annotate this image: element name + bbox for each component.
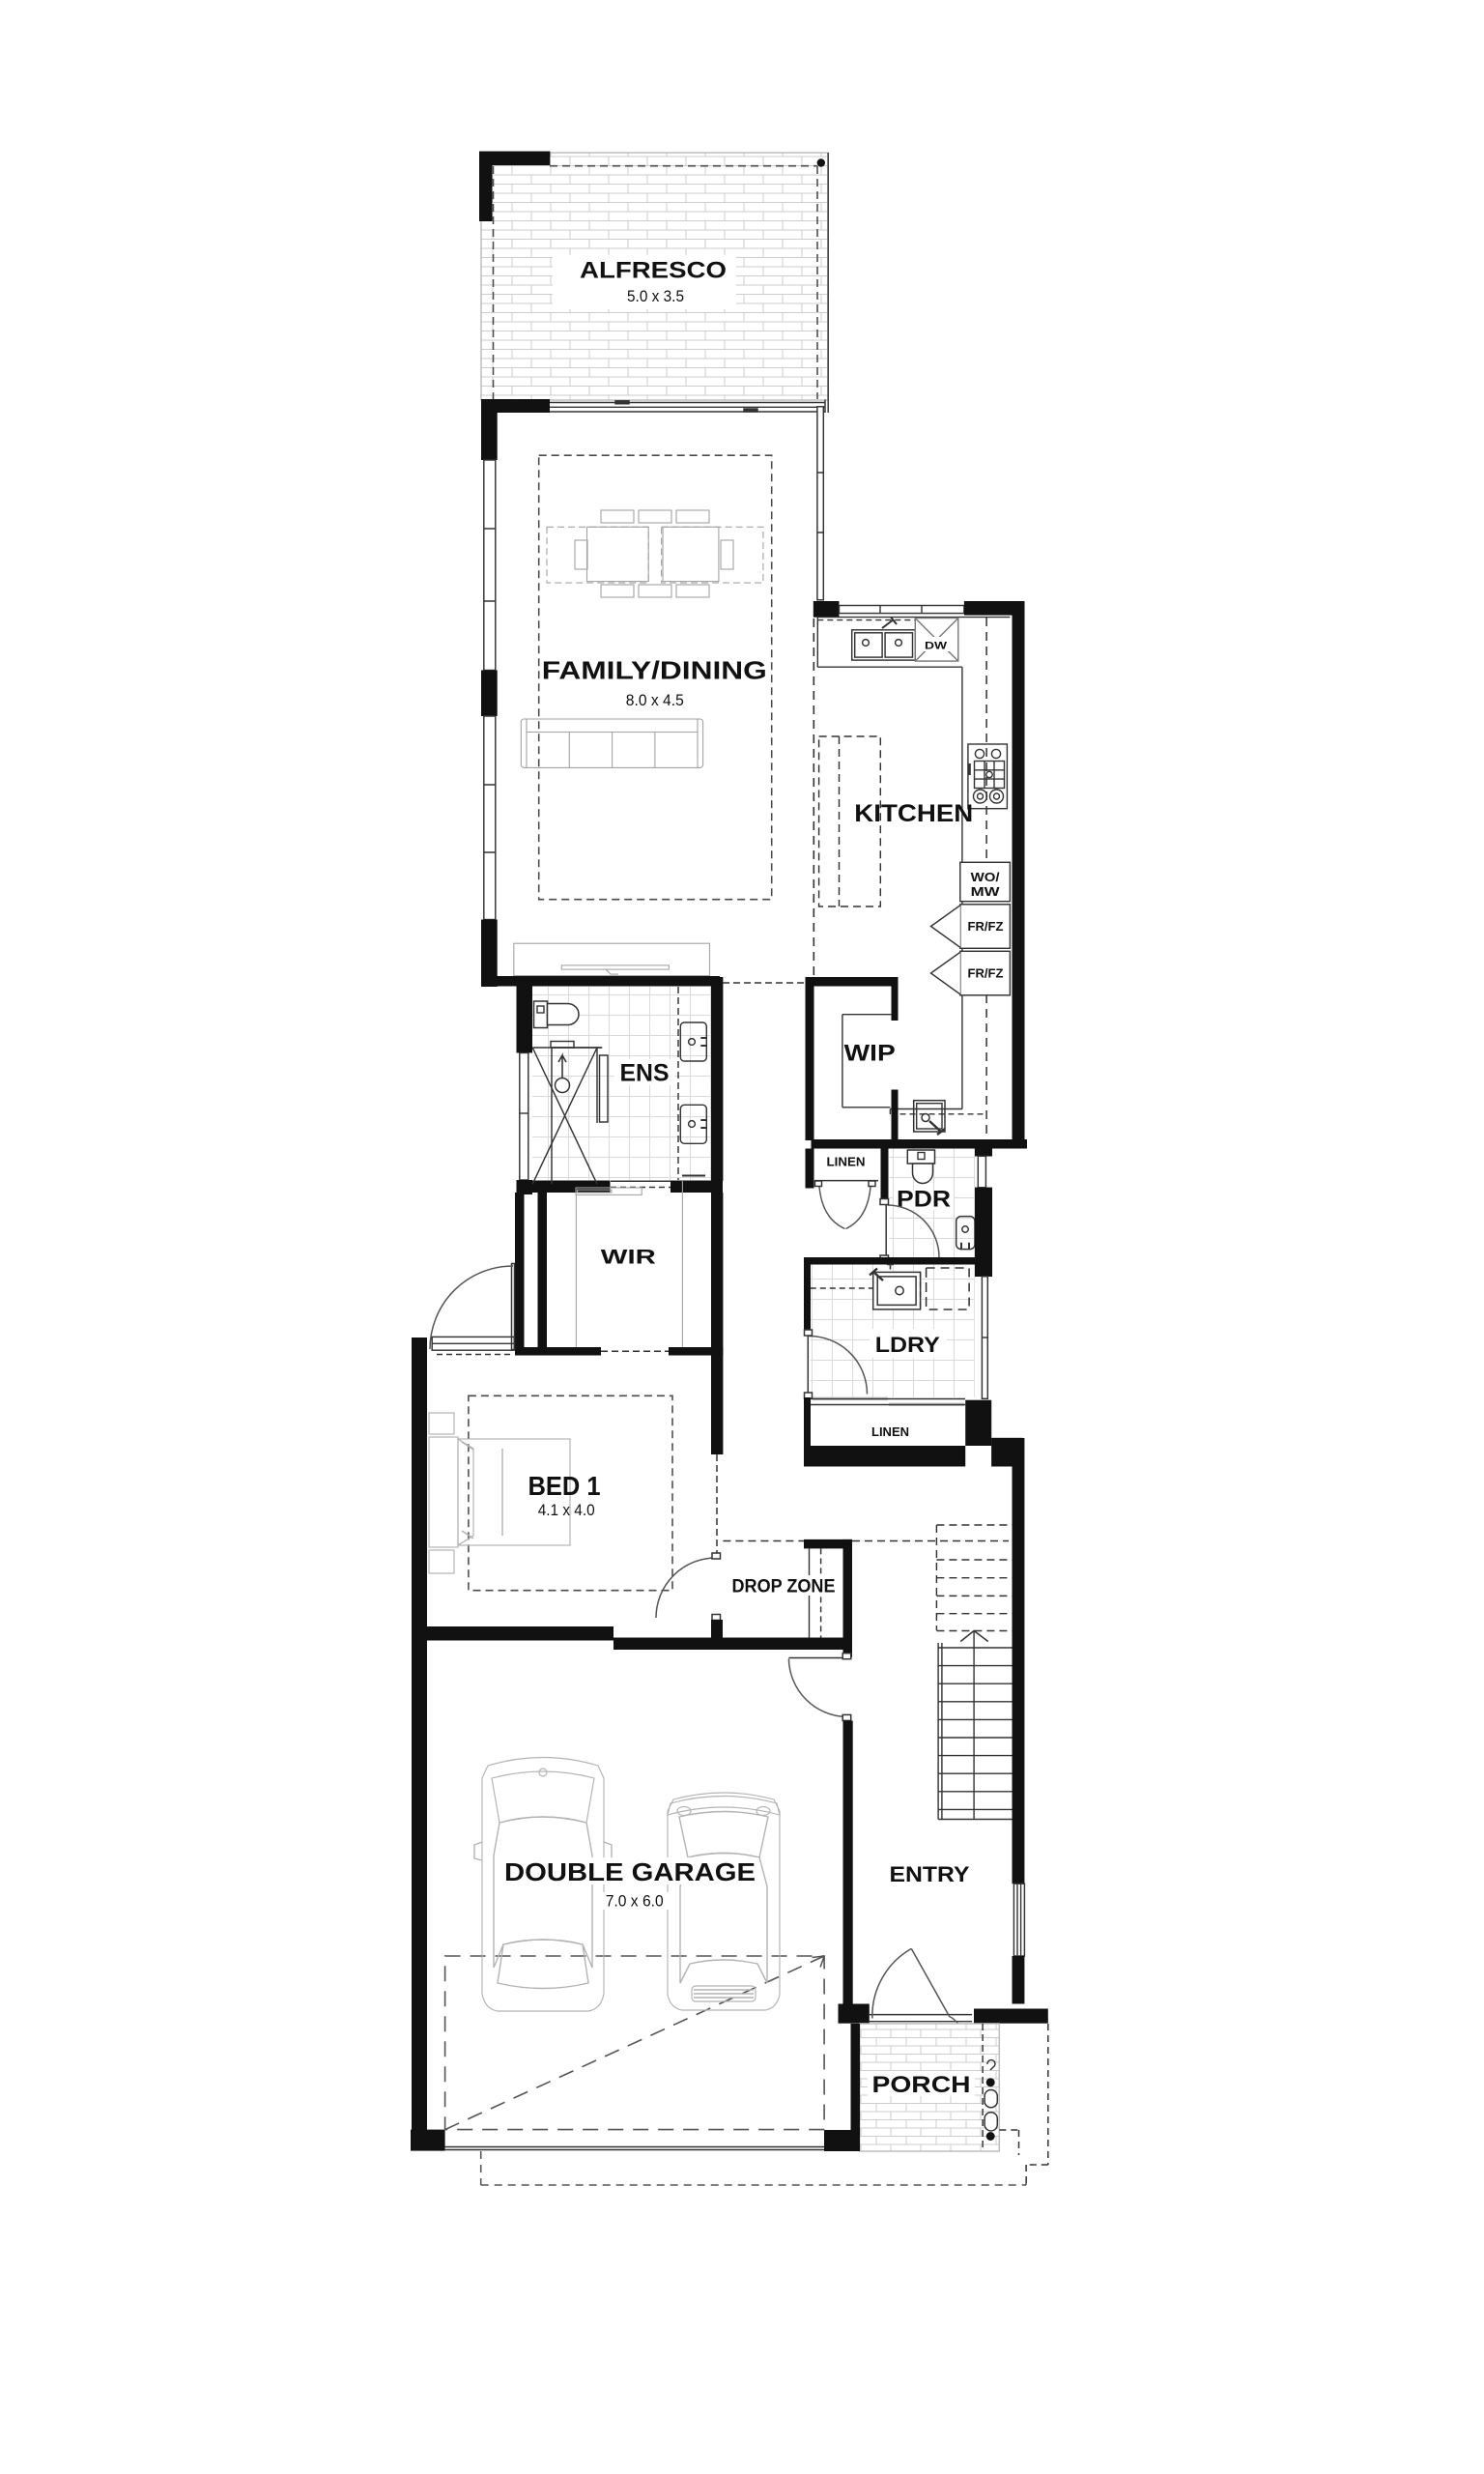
svg-text:7.0 x 6.0: 7.0 x 6.0 xyxy=(606,1892,664,1911)
svg-text:4.1 x 4.0: 4.1 x 4.0 xyxy=(538,1501,595,1519)
svg-text:LINEN: LINEN xyxy=(871,1424,909,1439)
svg-text:DROP ZONE: DROP ZONE xyxy=(732,1577,836,1597)
svg-text:MW: MW xyxy=(971,885,1000,899)
svg-text:FR/FZ: FR/FZ xyxy=(968,967,1004,981)
svg-text:KITCHEN: KITCHEN xyxy=(854,800,973,827)
svg-text:8.0 x 4.5: 8.0 x 4.5 xyxy=(626,692,684,709)
svg-text:DW: DW xyxy=(925,641,948,652)
svg-text:WIR: WIR xyxy=(601,1247,656,1269)
svg-text:PORCH: PORCH xyxy=(872,2072,971,2098)
svg-text:ENS: ENS xyxy=(620,1060,670,1087)
svg-text:FAMILY/DINING: FAMILY/DINING xyxy=(542,656,767,685)
svg-text:WIP: WIP xyxy=(844,1041,896,1067)
svg-text:LINEN: LINEN xyxy=(827,1155,866,1169)
svg-text:DOUBLE GARAGE: DOUBLE GARAGE xyxy=(504,1857,756,1886)
svg-text:BED 1: BED 1 xyxy=(528,1471,601,1501)
svg-text:WO/: WO/ xyxy=(971,871,1001,884)
svg-text:ENTRY: ENTRY xyxy=(890,1862,970,1886)
svg-text:FR/FZ: FR/FZ xyxy=(968,920,1004,934)
svg-text:5.0 x 3.5: 5.0 x 3.5 xyxy=(627,288,684,305)
svg-text:LDRY: LDRY xyxy=(875,1333,940,1357)
svg-text:ALFRESCO: ALFRESCO xyxy=(580,258,727,284)
